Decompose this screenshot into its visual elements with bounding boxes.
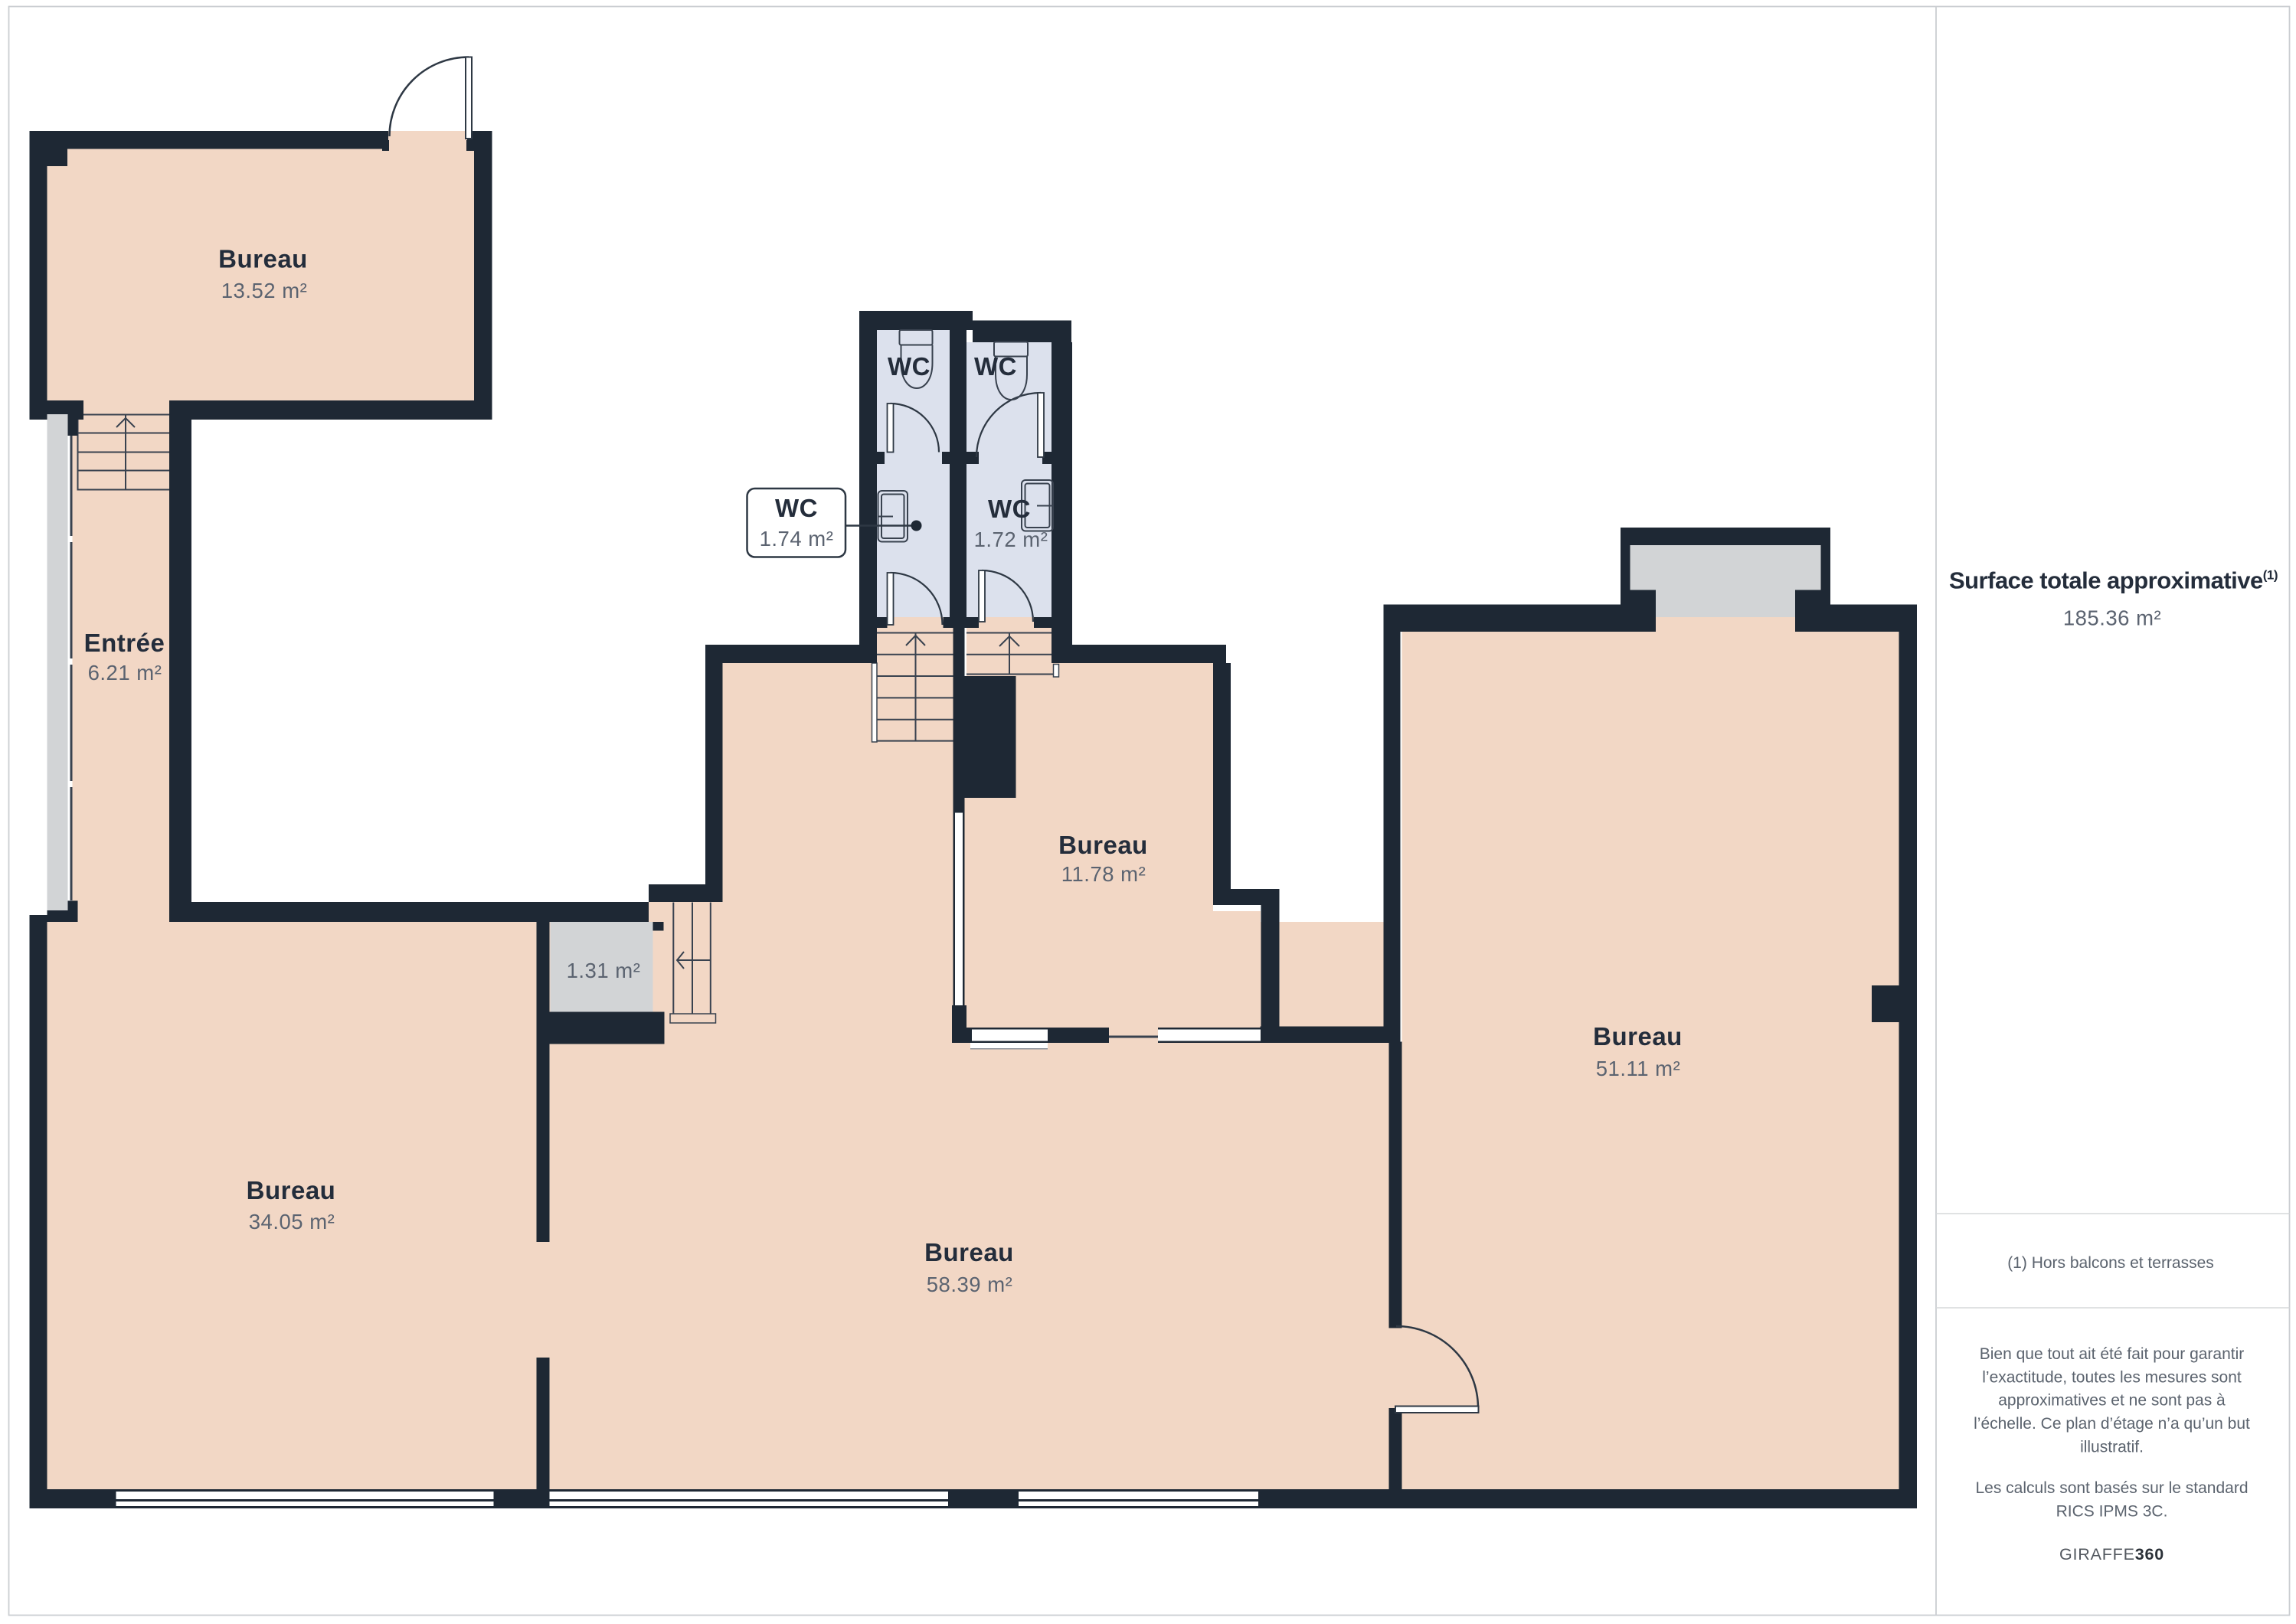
- svg-text:11.78 m²: 11.78 m²: [1061, 862, 1146, 886]
- svg-text:13.52 m²: 13.52 m²: [221, 279, 308, 302]
- svg-text:185.36 m²: 185.36 m²: [2063, 606, 2161, 630]
- svg-text:Entrée: Entrée: [84, 629, 165, 657]
- svg-text:1.31 m²: 1.31 m²: [567, 959, 641, 982]
- svg-text:WC: WC: [888, 352, 931, 381]
- svg-text:Bureau: Bureau: [218, 245, 308, 273]
- svg-text:1.74 m²: 1.74 m²: [760, 527, 834, 551]
- svg-text:6.21 m²: 6.21 m²: [88, 661, 162, 685]
- svg-text:l’exactitude, toutes les mesur: l’exactitude, toutes les mesures sont: [1982, 1368, 2242, 1386]
- svg-text:Surface totale approximative(1: Surface totale approximative(1): [1949, 567, 2278, 594]
- svg-text:1.72 m²: 1.72 m²: [974, 528, 1048, 551]
- svg-text:58.39 m²: 58.39 m²: [927, 1273, 1013, 1296]
- svg-text:(1) Hors balcons et terrasses: (1) Hors balcons et terrasses: [2007, 1254, 2214, 1272]
- svg-text:WC: WC: [775, 494, 818, 522]
- svg-text:WC: WC: [974, 352, 1017, 381]
- svg-text:illustratif.: illustratif.: [2080, 1438, 2144, 1456]
- svg-text:l’échelle. Ce plan d’étage n’a: l’échelle. Ce plan d’étage n’a qu’un but: [1974, 1415, 2250, 1433]
- svg-text:51.11 m²: 51.11 m²: [1596, 1057, 1680, 1080]
- svg-text:Bureau: Bureau: [1593, 1022, 1683, 1051]
- svg-text:Bureau: Bureau: [247, 1176, 336, 1204]
- svg-text:Bureau: Bureau: [1058, 831, 1148, 859]
- svg-text:34.05 m²: 34.05 m²: [249, 1210, 335, 1234]
- svg-text:Bien que tout ait été fait pou: Bien que tout ait été fait pour garantir: [1980, 1345, 2245, 1363]
- svg-text:Les calculs sont basés sur le: Les calculs sont basés sur le standard: [1975, 1479, 2248, 1497]
- svg-text:RICS IPMS 3C.: RICS IPMS 3C.: [2056, 1502, 2168, 1520]
- svg-text:Bureau: Bureau: [924, 1238, 1014, 1266]
- svg-text:WC: WC: [988, 495, 1031, 523]
- svg-text:GIRAFFE360: GIRAFFE360: [2059, 1545, 2164, 1564]
- svg-text:approximatives et ne sont pas: approximatives et ne sont pas à: [1998, 1392, 2226, 1410]
